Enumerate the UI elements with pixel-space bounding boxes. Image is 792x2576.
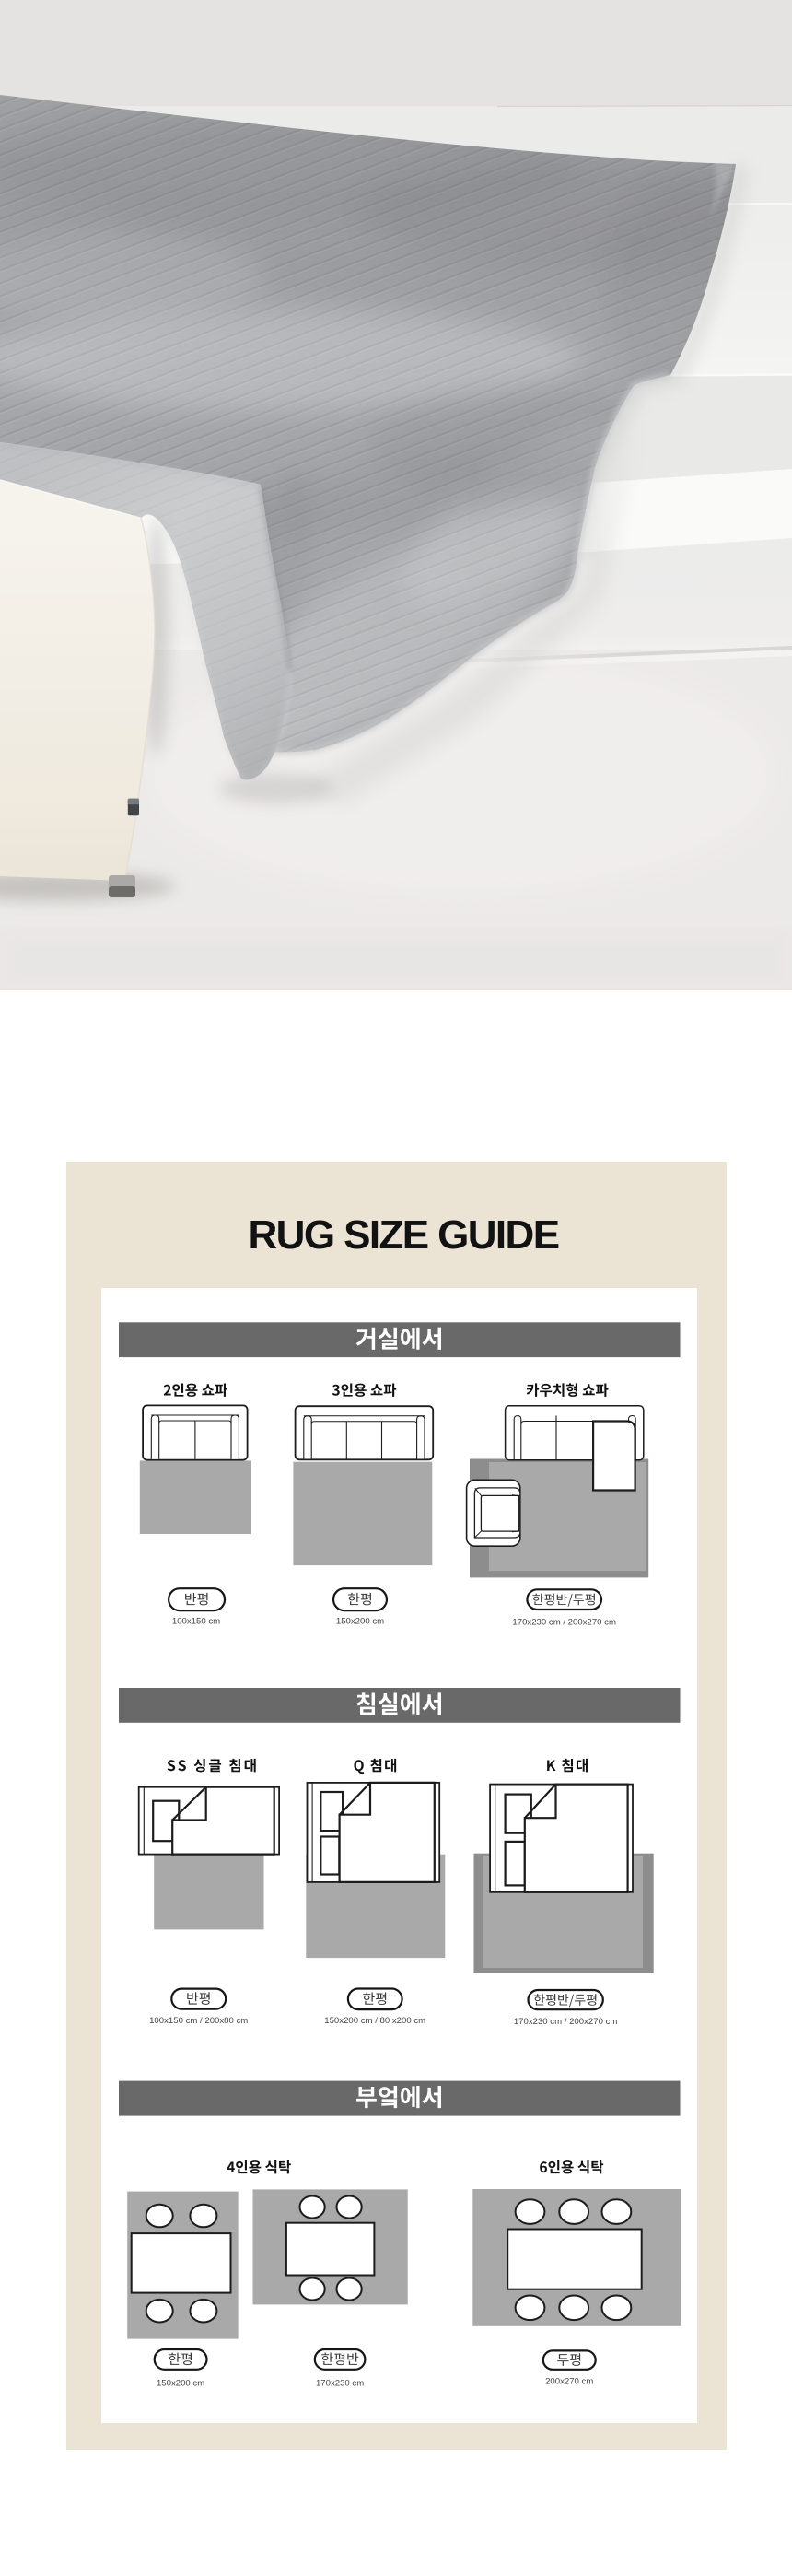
svg-text:150x200 cm: 150x200 cm	[157, 2379, 204, 2389]
svg-text:150x200 cm / 80 x200 cm: 150x200 cm / 80 x200 cm	[324, 2016, 425, 2026]
svg-text:170x230 cm / 200x270 cm: 170x230 cm / 200x270 cm	[512, 1618, 616, 1628]
svg-text:150x200 cm: 150x200 cm	[336, 1617, 384, 1627]
svg-text:170x230 cm / 200x270 cm: 170x230 cm / 200x270 cm	[514, 2017, 618, 2027]
svg-text:200x270 cm: 200x270 cm	[545, 2377, 593, 2387]
svg-text:100x150 cm / 200x80 cm: 100x150 cm / 200x80 cm	[149, 2016, 248, 2026]
svg-text:RUG SIZE GUIDE: RUG SIZE GUIDE	[249, 1212, 559, 1258]
svg-text:170x230 cm: 170x230 cm	[316, 2379, 364, 2389]
svg-text:100x150 cm: 100x150 cm	[172, 1617, 220, 1627]
